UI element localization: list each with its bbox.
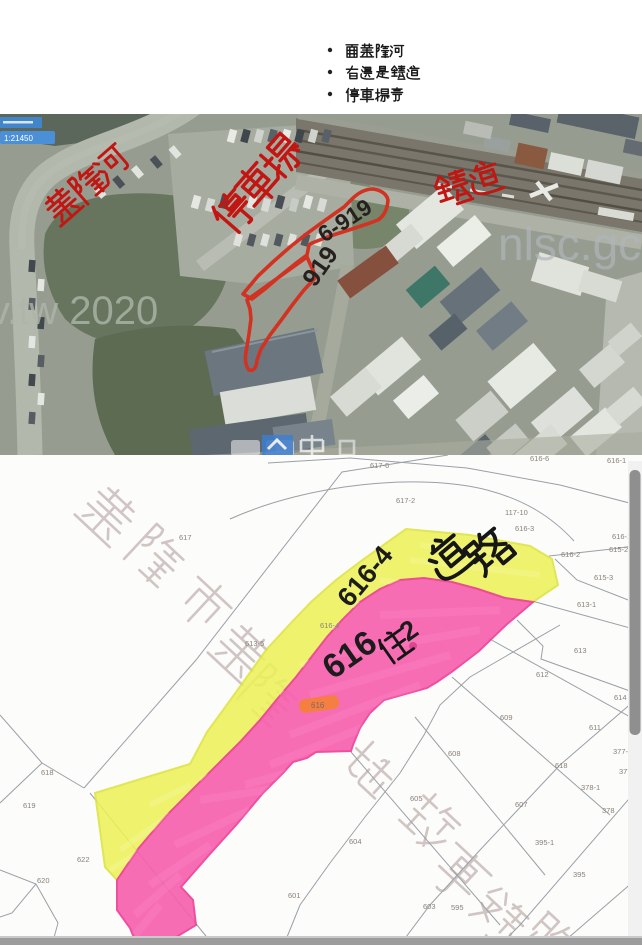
- svg-text:616-3: 616-3: [515, 524, 534, 533]
- svg-text:613-1: 613-1: [577, 600, 596, 609]
- svg-text:614: 614: [614, 693, 627, 702]
- svg-text:616-4: 616-4: [320, 621, 339, 630]
- svg-text:605: 605: [410, 794, 423, 803]
- svg-text:601: 601: [288, 891, 301, 900]
- svg-text:603: 603: [423, 902, 436, 911]
- svg-text:378-1: 378-1: [581, 783, 600, 792]
- svg-text:595: 595: [451, 903, 464, 912]
- svg-text:617: 617: [179, 533, 192, 542]
- svg-text:615-3: 615-3: [594, 573, 613, 582]
- svg-text:nlsc.gc: nlsc.gc: [498, 218, 641, 270]
- svg-text:395-1: 395-1: [535, 838, 554, 847]
- svg-text:618: 618: [41, 768, 54, 777]
- svg-text:620: 620: [37, 876, 50, 885]
- svg-text:611: 611: [589, 723, 601, 732]
- svg-text:v.tw 2020: v.tw 2020: [0, 289, 158, 333]
- svg-text:604: 604: [349, 837, 362, 846]
- svg-text:117-10: 117-10: [505, 508, 528, 517]
- svg-text:622: 622: [77, 855, 90, 864]
- svg-text:616-2: 616-2: [561, 550, 580, 559]
- svg-text:607: 607: [515, 800, 528, 809]
- svg-text:612: 612: [536, 670, 549, 679]
- svg-text:618: 618: [555, 761, 568, 770]
- svg-text:616: 616: [311, 701, 325, 710]
- svg-text:609: 609: [500, 713, 513, 722]
- svg-text:613: 613: [574, 646, 587, 655]
- svg-text:608: 608: [448, 749, 461, 758]
- svg-text:395: 395: [573, 870, 586, 879]
- svg-text:619: 619: [23, 801, 36, 810]
- svg-text:613-5: 613-5: [245, 639, 264, 648]
- svg-text:617-2: 617-2: [396, 496, 415, 505]
- svg-text:1:21450: 1:21450: [4, 134, 33, 143]
- svg-text:378: 378: [602, 806, 615, 815]
- svg-text:615-2: 615-2: [609, 545, 628, 554]
- svg-text:616-6: 616-6: [530, 455, 549, 463]
- svg-text:616-1: 616-1: [607, 456, 626, 465]
- svg-text:617-6: 617-6: [370, 461, 389, 470]
